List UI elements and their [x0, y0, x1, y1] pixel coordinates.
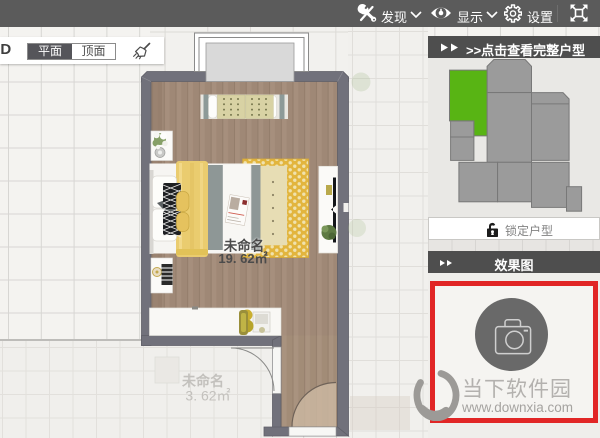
- svg-text:19. 62㎡: 19. 62㎡: [218, 251, 267, 266]
- svg-text:3. 62㎡: 3. 62㎡: [185, 388, 230, 404]
